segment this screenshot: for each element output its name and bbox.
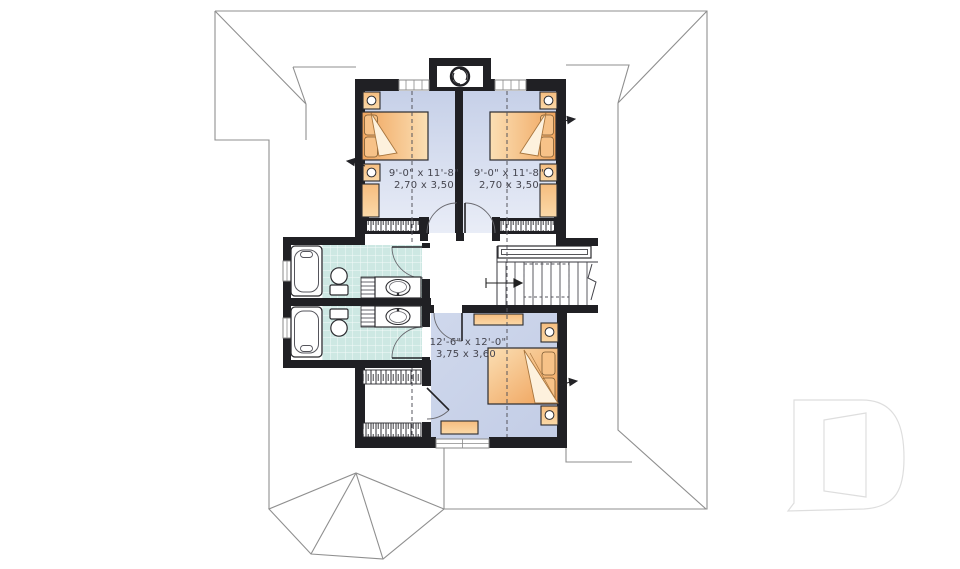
bed-bedroom3 xyxy=(488,348,558,404)
nightstand-lamp xyxy=(367,96,376,105)
bedroom2-closet-hatch xyxy=(500,221,554,231)
floor-plan-page: 9'-0" x 11'-8" 2,70 x 3,50 9'-0" x 11'-8… xyxy=(0,0,960,569)
turret-roof xyxy=(269,473,444,559)
bedroom3-label: 12'-6" x 12'-0" 3,75 x 3,60 xyxy=(430,337,507,360)
stair-break-line xyxy=(588,264,596,300)
bedroom2-window xyxy=(495,80,526,90)
dresser xyxy=(441,421,478,434)
bed-bedroom2 xyxy=(490,112,556,160)
builder-logo-D xyxy=(788,400,904,511)
dresser xyxy=(362,184,379,217)
nightstand-lamp xyxy=(367,168,376,177)
stair-railing xyxy=(498,246,591,258)
vanity-sink-bottom xyxy=(375,306,421,327)
bathtub-bottom xyxy=(291,307,322,357)
stair-landing-dashed xyxy=(524,264,569,297)
nightstand-lamp xyxy=(545,328,554,337)
stair-direction-arrow xyxy=(486,278,522,288)
bedroom1-window xyxy=(399,80,429,90)
bedroom3-dims-metric: 3,75 x 3,60 xyxy=(436,349,496,360)
dresser xyxy=(474,314,523,325)
bathroom2-window xyxy=(283,318,291,338)
bedroom1-closet-hatch xyxy=(367,221,419,231)
nightstand-lamp xyxy=(544,96,553,105)
staircase xyxy=(486,246,598,305)
toilet-top xyxy=(330,268,348,295)
dormer-round-window xyxy=(437,66,483,87)
vanity-sink-top xyxy=(375,277,421,298)
floor-plan-drawing: 9'-0" x 11'-8" 2,70 x 3,50 9'-0" x 11'-8… xyxy=(0,0,960,569)
nightstand-lamp xyxy=(544,168,553,177)
bedroom2-dims-metric: 2,70 x 3,50 xyxy=(479,180,539,191)
bed-bedroom1 xyxy=(362,112,428,160)
bathtub-top xyxy=(291,246,322,296)
bathroom1-window xyxy=(283,261,291,281)
bedroom1-dims-metric: 2,70 x 3,50 xyxy=(394,180,454,191)
linen-shelves-bottom xyxy=(361,306,375,327)
bedroom1-dims-imperial: 9'-0" x 11'-8" xyxy=(389,168,459,179)
bedroom1-label: 9'-0" x 11'-8" 2,70 x 3,50 xyxy=(389,168,459,191)
bedroom3-window xyxy=(436,439,489,448)
roof-left-gable xyxy=(215,11,356,140)
bedroom3-dims-imperial: 12'-6" x 12'-0" xyxy=(430,337,507,348)
bedroom2-dims-imperial: 9'-0" x 11'-8" xyxy=(474,168,544,179)
linen-shelves-top xyxy=(361,277,375,298)
dresser xyxy=(540,184,557,217)
nightstand-lamp xyxy=(545,411,554,420)
toilet-bottom xyxy=(330,309,348,336)
bedroom2-label: 9'-0" x 11'-8" 2,70 x 3,50 xyxy=(474,168,544,191)
